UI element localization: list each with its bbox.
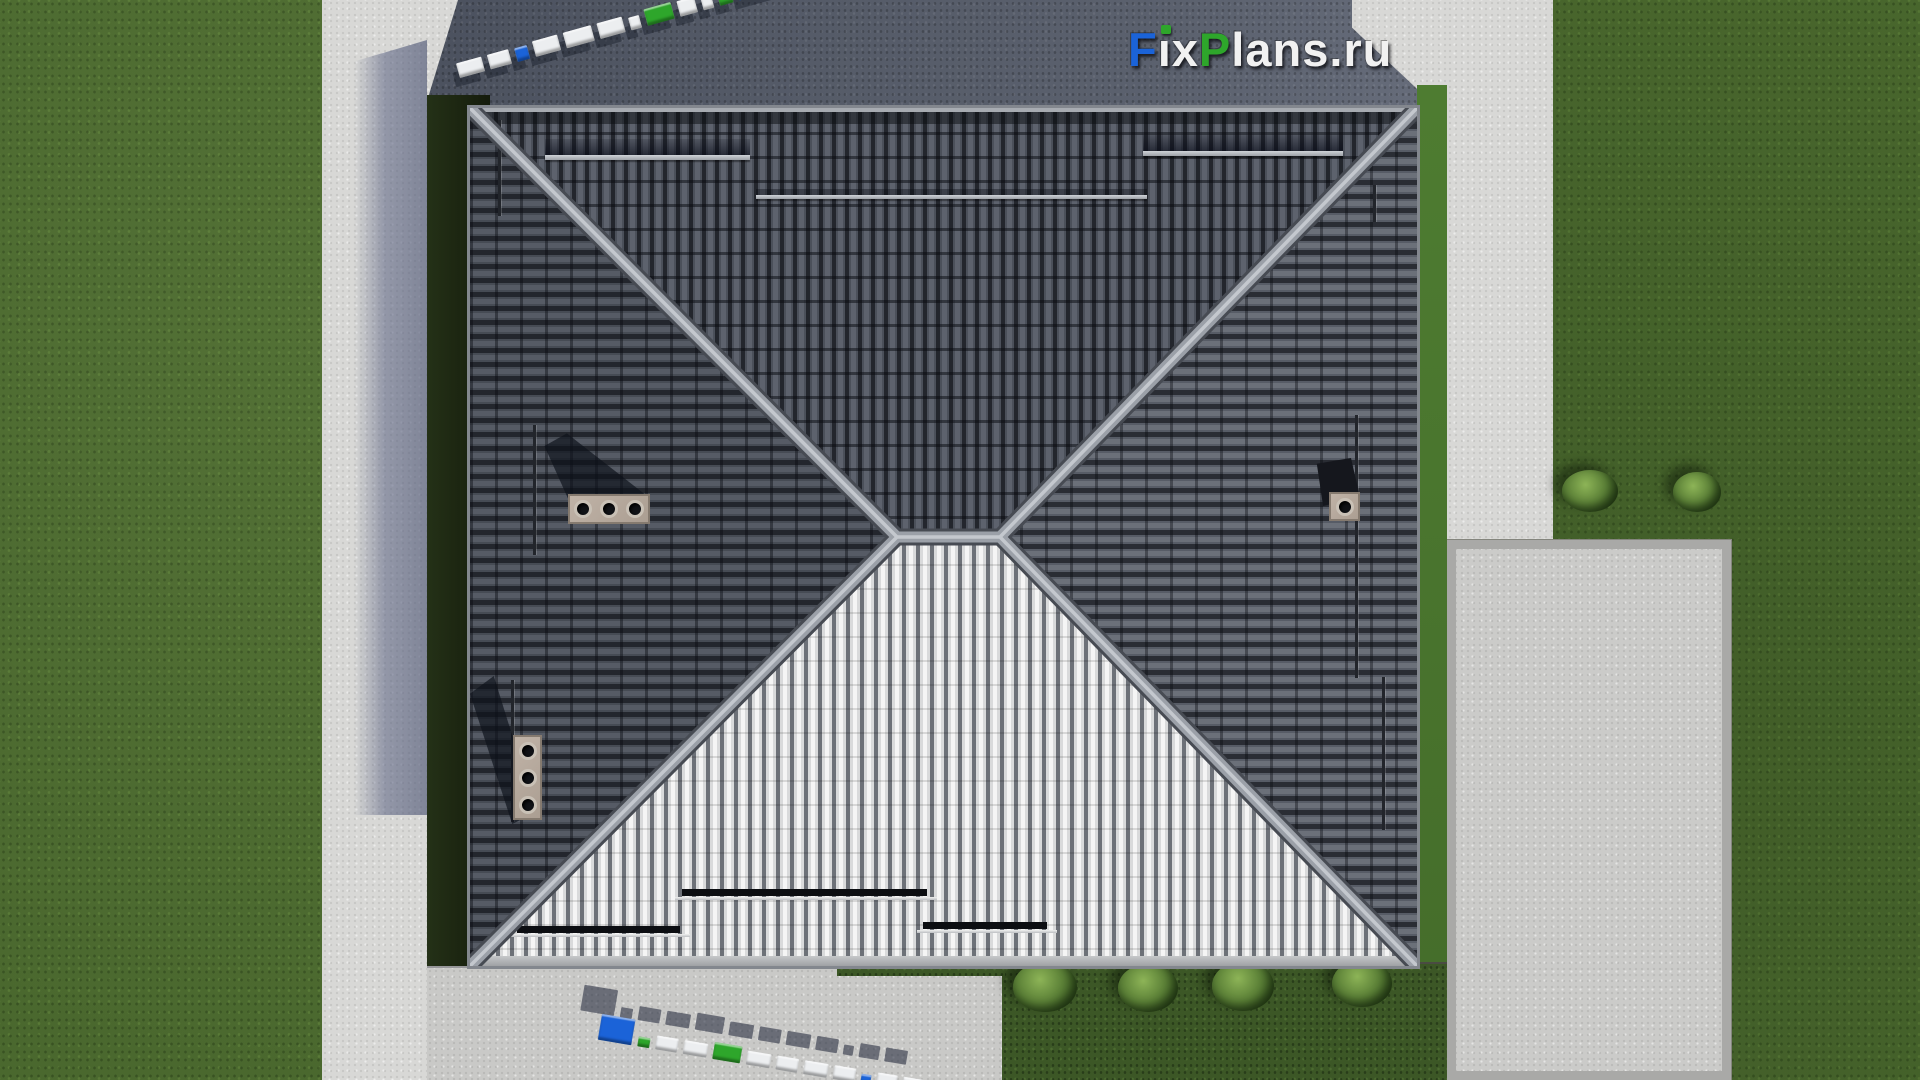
logo-lans: lans bbox=[1231, 23, 1329, 76]
logo-x: x bbox=[1172, 23, 1199, 76]
grass-strip-right bbox=[1417, 85, 1447, 1080]
concrete-pad-right bbox=[1447, 540, 1731, 1080]
aerial-house-render: FıxPlans.ru bbox=[0, 0, 1920, 1080]
garden-bush bbox=[1212, 961, 1274, 1011]
garden-bush bbox=[1013, 962, 1077, 1012]
watermark-letter-block bbox=[876, 1072, 898, 1080]
garden-bush bbox=[1118, 964, 1178, 1012]
fixplans-logo: FıxPlans.ru bbox=[1128, 22, 1392, 77]
i-dot-green-icon bbox=[1161, 25, 1171, 34]
garden-bush bbox=[1332, 960, 1392, 1007]
hip-roof bbox=[470, 108, 1417, 966]
concrete-path-right bbox=[1447, 0, 1553, 552]
watermark-letter-block bbox=[832, 1065, 856, 1080]
lawn-bush bbox=[1673, 472, 1721, 512]
watermark-letter-block bbox=[860, 1074, 872, 1080]
building-shadow-on-path bbox=[322, 40, 427, 815]
lawn-bush bbox=[1562, 470, 1618, 512]
ridge-lines bbox=[470, 108, 1417, 966]
logo-p: P bbox=[1199, 23, 1231, 76]
logo-i: ı bbox=[1158, 22, 1172, 77]
concrete-apron-bottom bbox=[427, 966, 1012, 1080]
watermark-letter-block bbox=[598, 1014, 636, 1045]
logo-f: F bbox=[1128, 23, 1158, 76]
watermark-letter-block bbox=[637, 1036, 650, 1048]
logo-dot-ru: .ru bbox=[1329, 23, 1392, 76]
